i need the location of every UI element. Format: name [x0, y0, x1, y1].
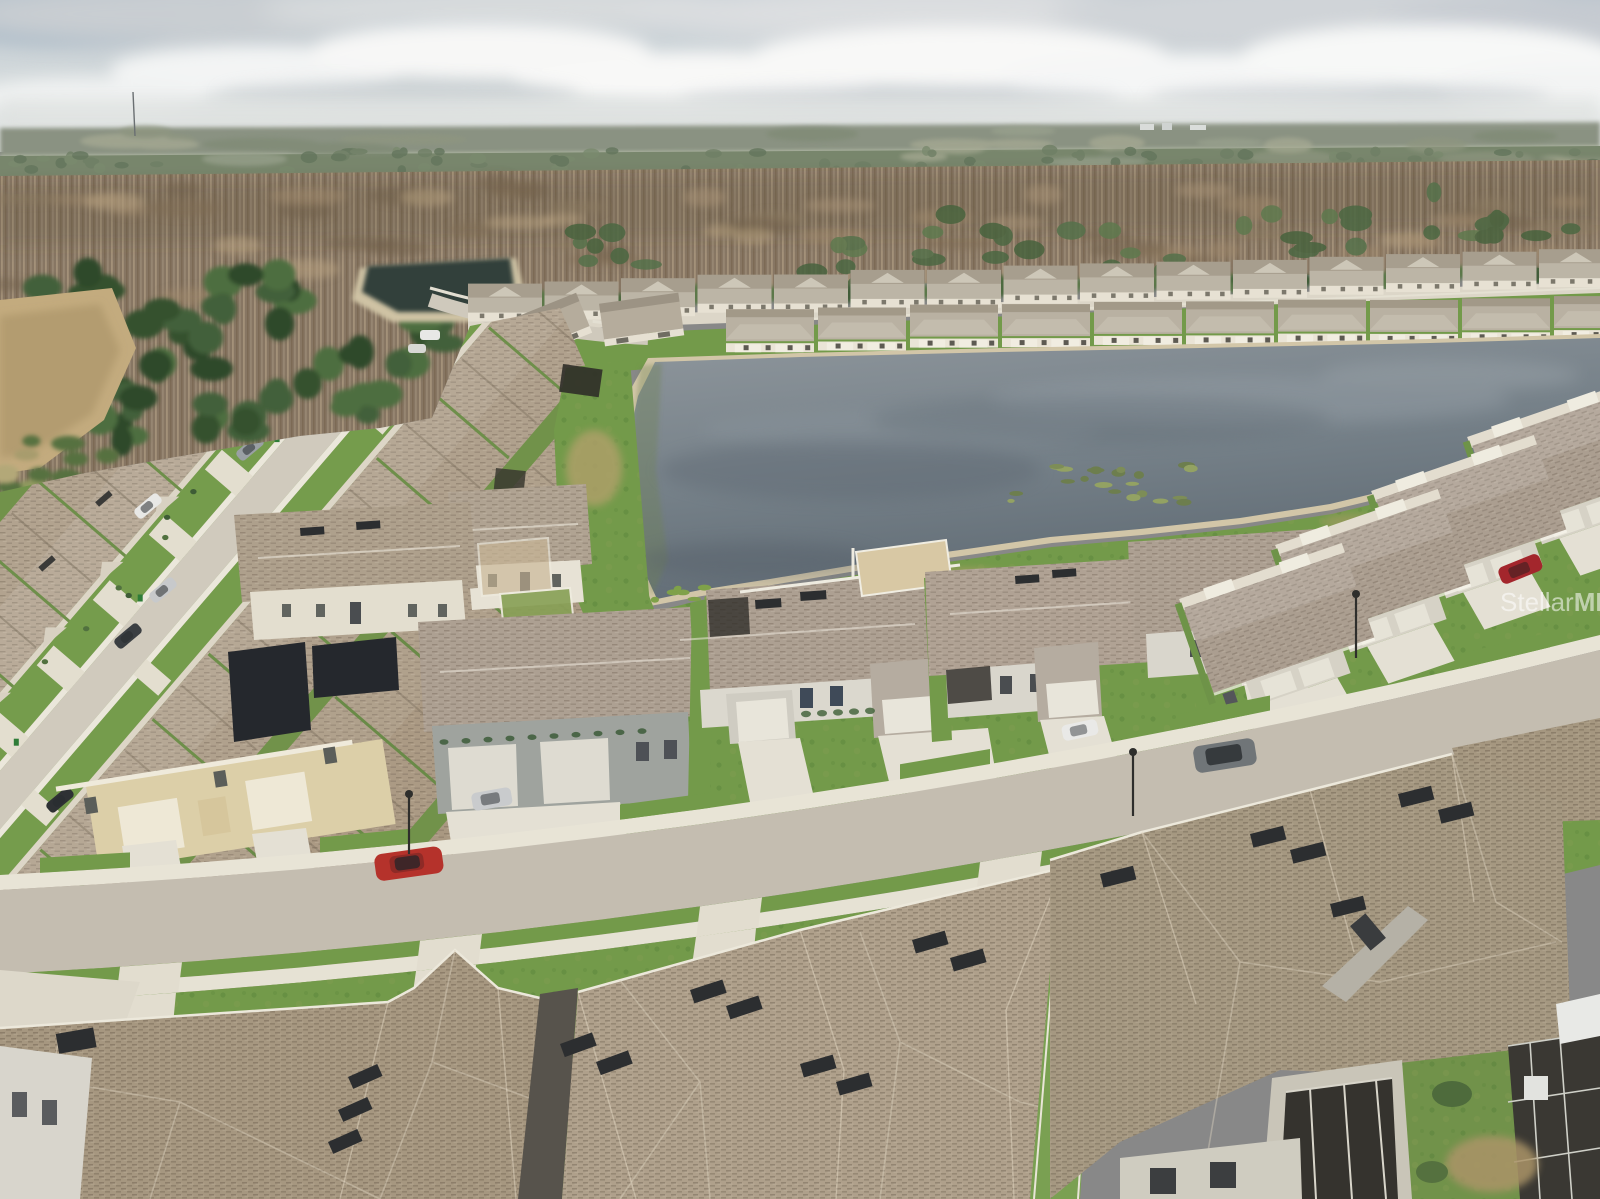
svg-text:StellarMLS: StellarMLS [1500, 587, 1600, 617]
